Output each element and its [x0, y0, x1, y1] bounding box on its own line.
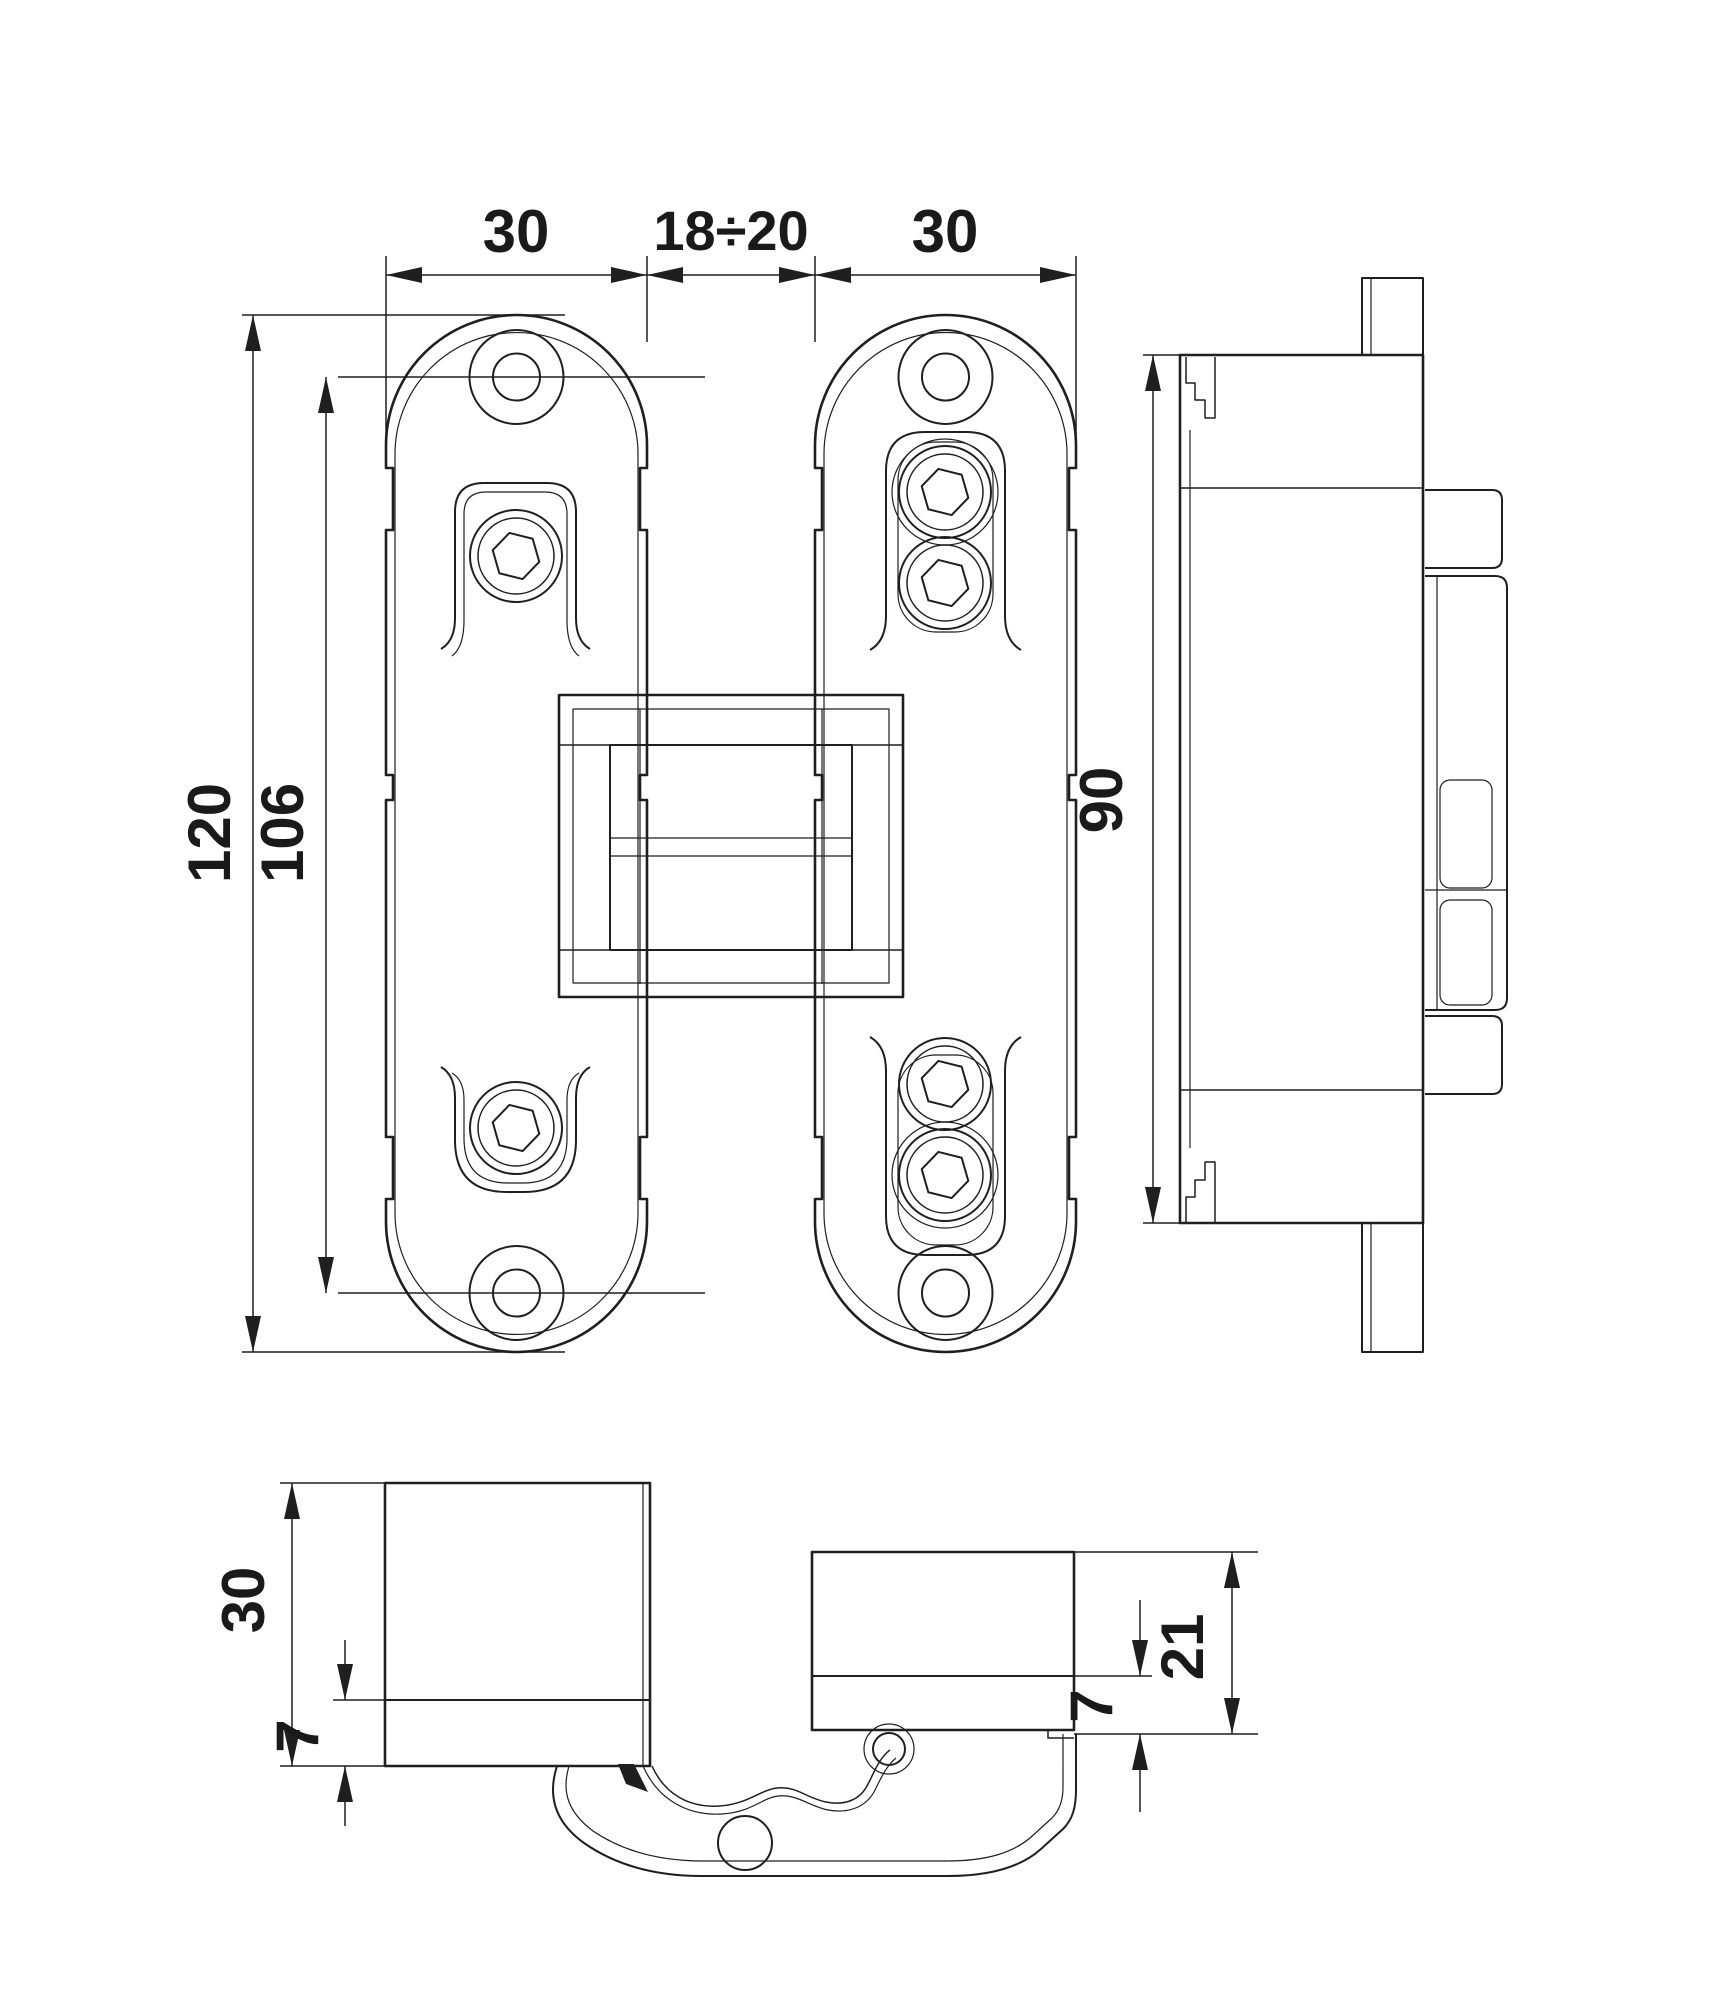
dimension-front-left: 120 106	[176, 315, 705, 1352]
dim-label-frame-recess: 7	[1058, 1689, 1125, 1722]
section-frame: 7 21	[812, 1552, 1258, 1812]
dim-label-door-depth: 30	[210, 1567, 277, 1634]
dim-label-gap: 18÷20	[653, 199, 808, 262]
linkage-pivot-hole	[718, 1816, 772, 1870]
linkage-pin	[873, 1733, 905, 1765]
front-view: 30 18÷20 30 120 106	[176, 198, 1076, 1352]
bottom-section-view: 30 7 7 21	[210, 1483, 1258, 1876]
side-view: 90	[1068, 278, 1507, 1352]
hinge-linkage	[553, 1724, 1076, 1876]
dim-label-door-recess: 7	[264, 1719, 331, 1752]
hex-screw-upper-right-2	[899, 537, 991, 629]
section-door-leaf: 30 7	[210, 1483, 650, 1826]
side-body	[1180, 355, 1423, 1223]
dimension-top-chain: 30 18÷20 30	[386, 198, 1076, 448]
dim-label-hole-centers: 106	[249, 783, 316, 883]
dimension-side-90: 90	[1068, 355, 1180, 1223]
dim-label-overall-height: 120	[176, 783, 243, 883]
lower-tab-right	[870, 1037, 1021, 1255]
upper-tab-right	[870, 432, 1021, 650]
hinge-technical-drawing: 30 18÷20 30 120 106	[0, 0, 1720, 2000]
hinge-central-body	[559, 695, 903, 997]
hex-screw-upper-left	[470, 510, 562, 602]
hex-screw-lower-right-1	[899, 1038, 991, 1130]
front-right-plate	[815, 315, 1076, 1352]
side-knuckle	[1425, 490, 1507, 1094]
countersunk-hole-bottom-right	[899, 1246, 993, 1340]
hex-screw-lower-right-2	[899, 1129, 991, 1221]
dim-label-plate-width-left: 30	[483, 198, 550, 265]
side-clip-top	[1186, 357, 1215, 418]
hex-screw-lower-left	[470, 1082, 562, 1174]
hex-screw-upper-right-1	[899, 446, 991, 538]
drawing-canvas: 30 18÷20 30 120 106	[0, 0, 1720, 2000]
side-clip-bottom	[1186, 1162, 1215, 1223]
countersunk-hole-top-right	[899, 330, 993, 424]
dim-label-frame-depth: 21	[1149, 1614, 1216, 1681]
front-left-plate	[386, 315, 647, 1352]
dim-label-body-height: 90	[1068, 767, 1135, 834]
dim-label-plate-width-right: 30	[912, 198, 979, 265]
